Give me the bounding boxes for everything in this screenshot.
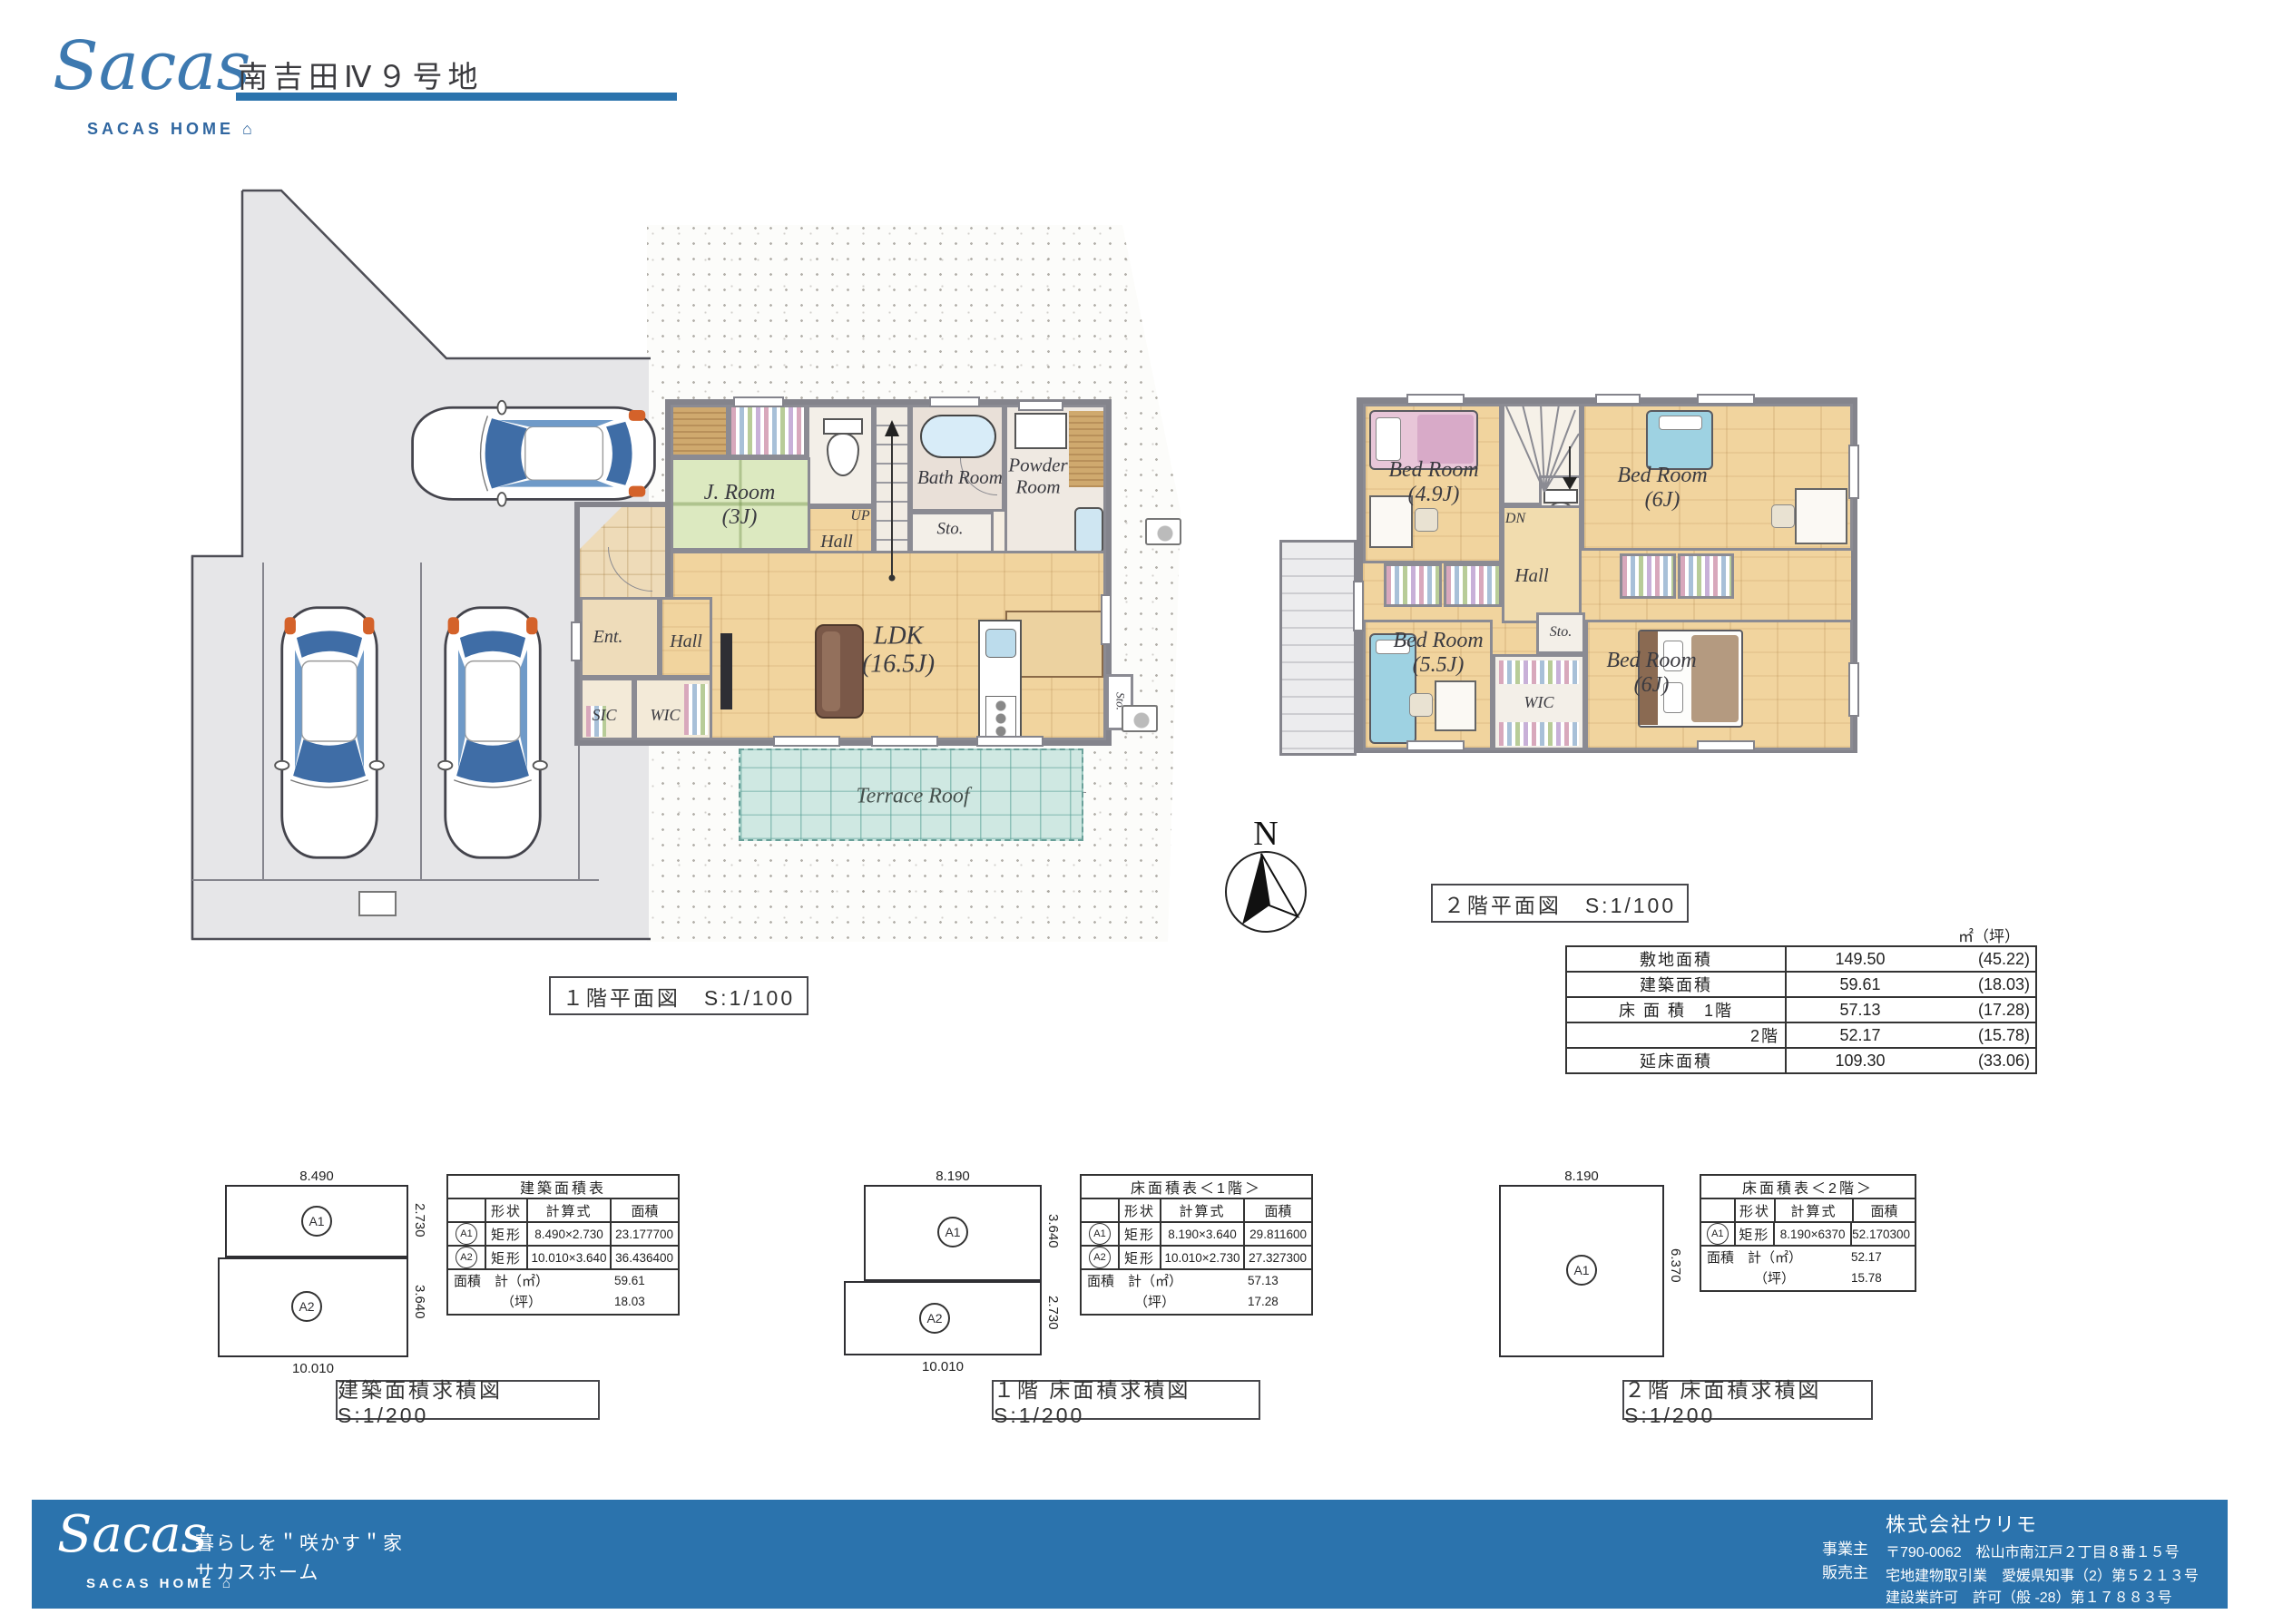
calc1-tsubo-value: 18.03 <box>614 1291 678 1312</box>
page-title: 南吉田Ⅳ９号地 <box>238 53 483 96</box>
car-icon-3 <box>438 608 547 858</box>
window-2f-right-1 <box>1848 445 1859 499</box>
calc2-tsubo-value: 17.28 <box>1248 1291 1311 1312</box>
window-2f-bottom-2 <box>1697 740 1755 751</box>
dim2-a1-right: 3.640 <box>1045 1214 1061 1248</box>
dim-a2-right: 3.640 <box>412 1285 427 1319</box>
summary-label-2: 床 面 積 1階 <box>1566 997 1786 1022</box>
calc3-col-area: 面積 <box>1852 1199 1915 1221</box>
dim3-a1-top: 8.190 <box>1499 1169 1664 1184</box>
calc2-tsubo-label: （坪） <box>1087 1292 1239 1313</box>
label-hall-stairs: Hall <box>820 532 853 552</box>
window-2f-left <box>1353 581 1364 631</box>
footer-address: 〒790-0062 松山市南江戸２丁目８番１５号 <box>1886 1540 2180 1561</box>
calc1-row2-formula: 10.010×3.640 <box>526 1247 610 1268</box>
summary-tsubo-4: (33.06) <box>1934 1048 2036 1073</box>
stove-icon <box>985 696 1016 741</box>
caption-1f: １階平面図 S:1/100 <box>549 976 808 1015</box>
stairs-up-origin <box>889 575 896 582</box>
calc2-row1-area: 29.811600 <box>1243 1223 1311 1245</box>
label-wic-2f: WIC <box>1524 693 1554 711</box>
label-terrace: Terrace Roof <box>856 785 969 809</box>
summary-label-1: 建築面積 <box>1566 972 1786 997</box>
stairs-2f-lines <box>1270 390 1906 916</box>
floor-plan-2f: Bed Room(4.9J) Bed Room(6J) Bed Room(5.5… <box>1270 390 1906 916</box>
calc2-a2-id: A2 <box>919 1303 950 1334</box>
window-1f-left <box>571 621 582 661</box>
footer-license-1: 宅地建物取引業 愛媛県知事（2）第５２１３号 <box>1886 1563 2199 1585</box>
calc2-col-area: 面積 <box>1243 1199 1311 1221</box>
calc1-row2-shape: 矩形 <box>485 1247 526 1268</box>
calc2-row2-id: A2 <box>1089 1247 1111 1268</box>
calc3-col-shape: 形状 <box>1734 1199 1774 1221</box>
calc2-row2-formula: 10.010×2.730 <box>1160 1247 1243 1268</box>
calc1-row1-shape: 矩形 <box>485 1223 526 1245</box>
calc3-row1-id: A1 <box>1707 1223 1729 1245</box>
footer-tagline-1: 暮らしを＂咲かす＂家 <box>195 1529 404 1556</box>
summary-value-4: 109.30 <box>1786 1048 1934 1073</box>
label-powder: PowderRoom <box>1008 455 1067 497</box>
label-sto-2f: Sto. <box>1550 624 1572 641</box>
window-2f-bottom-1 <box>1406 740 1465 751</box>
sacas-wordmark-text: SACAS HOME <box>87 120 234 138</box>
calc2-a1-id: A1 <box>937 1217 968 1247</box>
label-bedroom-4: Bed Room(6J) <box>1606 649 1696 698</box>
footer-tagline-2: サカスホーム <box>195 1558 319 1585</box>
caption-calc-3: ２階 床面積求積図 S:1/200 <box>1622 1380 1873 1420</box>
house-icon: ⌂ <box>242 120 256 138</box>
label-sto-top: Sto. <box>936 519 963 538</box>
label-up: UP <box>850 508 869 524</box>
summary-tsubo-0: (45.22) <box>1934 946 2036 972</box>
summary-value-3: 52.17 <box>1786 1022 1934 1048</box>
label-dn: DN <box>1505 511 1525 527</box>
window-1f-right <box>1101 594 1112 645</box>
calc2-row1-formula: 8.190×3.640 <box>1160 1223 1243 1245</box>
label-ent: Ent. <box>593 627 623 647</box>
caption-calc-1: 建築面積求積図 S:1/200 <box>336 1380 600 1420</box>
calc-diagram-1: 8.490 A1 A2 2.730 3.640 10.010 <box>218 1169 436 1377</box>
dim2-a1-top: 8.190 <box>864 1169 1042 1184</box>
calc1-total-label: 面積 計（㎡） <box>454 1271 605 1292</box>
calc2-row1-id: A1 <box>1089 1223 1111 1245</box>
calc2-row2-area: 27.327300 <box>1243 1247 1311 1268</box>
calc2-row2-shape: 矩形 <box>1118 1247 1160 1268</box>
calc2-title: 床面積表＜1階＞ <box>1082 1176 1311 1199</box>
table-row: 敷地面積149.50(45.22) <box>1566 946 2036 972</box>
summary-tsubo-1: (18.03) <box>1934 972 2036 997</box>
calc1-row1-formula: 8.490×2.730 <box>526 1223 610 1245</box>
car-icon-2 <box>275 608 384 858</box>
label-hall-2f: Hall <box>1514 565 1548 587</box>
label-ldk: LDK(16.5J) <box>862 622 935 680</box>
summary-value-2: 57.13 <box>1786 997 1934 1022</box>
calc1-col-area: 面積 <box>610 1199 678 1221</box>
floor-plan-1f: J. Room(3J) Bath Room PowderRoom Sto. UP… <box>181 186 1189 953</box>
label-wic-1f: WIC <box>651 706 681 724</box>
area-summary-table: 敷地面積149.50(45.22) 建築面積59.61(18.03) 床 面 積… <box>1565 945 2037 1074</box>
calc3-total-label: 面積 計（㎡） <box>1707 1247 1842 1268</box>
calc3-total-value: 52.17 <box>1851 1247 1915 1267</box>
summary-tsubo-2: (17.28) <box>1934 997 2036 1022</box>
calc-table-1: 建築面積表 形状計算式面積 A1矩形8.490×2.73023.177700 A… <box>446 1174 680 1316</box>
calc3-row1-formula: 8.190×6370 <box>1773 1223 1850 1245</box>
calc3-title: 床面積表＜2階＞ <box>1701 1176 1915 1199</box>
dim-a1-right: 2.730 <box>412 1203 427 1238</box>
window-1f-top-3 <box>1018 400 1063 411</box>
table-row: 建築面積59.61(18.03) <box>1566 972 2036 997</box>
footer-company: 株式会社ウリモ <box>1886 1509 2038 1538</box>
calc3-col-formula: 計算式 <box>1774 1199 1852 1221</box>
label-bedroom-3: Bed Room(5.5J) <box>1393 629 1483 678</box>
calc-table-2: 床面積表＜1階＞ 形状計算式面積 A1矩形8.190×3.64029.81160… <box>1080 1174 1313 1316</box>
calc2-total-label: 面積 計（㎡） <box>1087 1271 1239 1292</box>
calc3-tsubo-label: （坪） <box>1707 1268 1842 1289</box>
calc3-a1-id: A1 <box>1566 1255 1597 1286</box>
summary-tsubo-3: (15.78) <box>1934 1022 2036 1048</box>
window-1f-terrace-2 <box>871 736 938 747</box>
sofa-icon <box>815 624 864 719</box>
calc1-col-shape: 形状 <box>485 1199 526 1221</box>
calc1-row2-area: 36.436400 <box>610 1247 678 1268</box>
kitchen-sink-icon <box>985 629 1016 658</box>
footer-role-1: 事業主 <box>1822 1536 1868 1559</box>
dim-a1-top: 8.490 <box>225 1169 408 1184</box>
calc2-col-formula: 計算式 <box>1160 1199 1243 1221</box>
footer-sacas-logo: Sacas <box>57 1505 207 1564</box>
calc-diagram-3: 8.190 A1 6.370 <box>1488 1169 1697 1377</box>
calc3-row1-area: 52.170300 <box>1850 1223 1915 1245</box>
sacas-wordmark: SACAS HOME ⌂ <box>87 120 256 139</box>
calc1-a2-id: A2 <box>291 1291 322 1322</box>
table-row: 延床面積109.30(33.06) <box>1566 1048 2036 1073</box>
calc3-row1-shape: 矩形 <box>1734 1223 1774 1245</box>
flyer-page: Sacas SACAS HOME ⌂ 南吉田Ⅳ９号地 <box>0 0 2283 1624</box>
label-sic: SIC <box>593 706 617 724</box>
label-jroom: J. Room(3J) <box>704 481 776 530</box>
footer-bar: Sacas SACAS HOME ⌂ 暮らしを＂咲かす＂家 サカスホーム 事業主… <box>32 1500 2228 1609</box>
dim3-a1-right: 6.370 <box>1668 1248 1683 1283</box>
summary-value-1: 59.61 <box>1786 972 1934 997</box>
calc1-title: 建築面積表 <box>448 1176 678 1199</box>
summary-unit-header: ㎡（坪） <box>1906 924 2020 946</box>
kitchen-counter <box>978 620 1022 745</box>
calc1-row1-area: 23.177700 <box>610 1223 678 1245</box>
window-1f-terrace-1 <box>773 736 840 747</box>
window-2f-top-1 <box>1406 394 1465 405</box>
calc1-col-formula: 計算式 <box>526 1199 610 1221</box>
summary-value-0: 149.50 <box>1786 946 1934 972</box>
caption-calc-2: １階 床面積求積図 S:1/200 <box>992 1380 1260 1420</box>
footer-license-2: 建設業許可 許可（般 -28）第１７８８３号 <box>1886 1585 2172 1607</box>
calc-table-3: 床面積表＜2階＞ 形状計算式面積 A1矩形8.190×637052.170300… <box>1700 1174 1916 1292</box>
car-icon-1 <box>413 401 655 506</box>
window-2f-top-2 <box>1595 394 1641 405</box>
calc1-row1-id: A1 <box>456 1223 477 1245</box>
calc2-col-shape: 形状 <box>1118 1199 1160 1221</box>
calc3-tsubo-value: 15.78 <box>1851 1267 1915 1288</box>
window-1f-top-2 <box>929 396 980 407</box>
calc2-row1-shape: 矩形 <box>1118 1223 1160 1245</box>
sacas-logo: Sacas <box>53 27 250 105</box>
calc2-total-value: 57.13 <box>1248 1270 1311 1291</box>
site-lines-and-cars <box>181 186 1189 953</box>
calc1-row2-id: A2 <box>456 1247 477 1268</box>
title-underline <box>236 93 677 101</box>
lot-boundary-top <box>242 191 651 358</box>
summary-label-4: 延床面積 <box>1566 1048 1786 1073</box>
summary-label-0: 敷地面積 <box>1566 946 1786 972</box>
calc1-tsubo-label: （坪） <box>454 1292 605 1313</box>
label-sto-kitchen: Sto. <box>1113 692 1127 710</box>
summary-label-3: 2階 <box>1566 1022 1786 1048</box>
calc-diagram-2: 8.190 A1 A2 3.640 2.730 10.010 <box>844 1169 1071 1377</box>
calc1-a1-id: A1 <box>301 1206 332 1237</box>
window-1f-top-1 <box>733 396 784 407</box>
label-bedroom-1: Bed Room(4.9J) <box>1388 458 1478 507</box>
label-bath: Bath Room <box>917 467 1003 489</box>
window-1f-terrace-3 <box>976 736 1044 747</box>
tv-board-icon <box>720 633 732 709</box>
stairs-up-arrow <box>885 420 899 436</box>
table-row: 床 面 積 1階57.13(17.28) <box>1566 997 2036 1022</box>
table-row: 2階52.17(15.78) <box>1566 1022 2036 1048</box>
window-2f-right-2 <box>1848 662 1859 717</box>
window-2f-top-3 <box>1697 394 1755 405</box>
footer-role-2: 販売主 <box>1822 1560 1868 1582</box>
dim2-a2-right: 2.730 <box>1045 1296 1061 1330</box>
calc1-total-value: 59.61 <box>614 1270 678 1291</box>
label-hall-entry: Hall <box>670 631 702 651</box>
label-bedroom-2: Bed Room(6J) <box>1617 464 1707 513</box>
